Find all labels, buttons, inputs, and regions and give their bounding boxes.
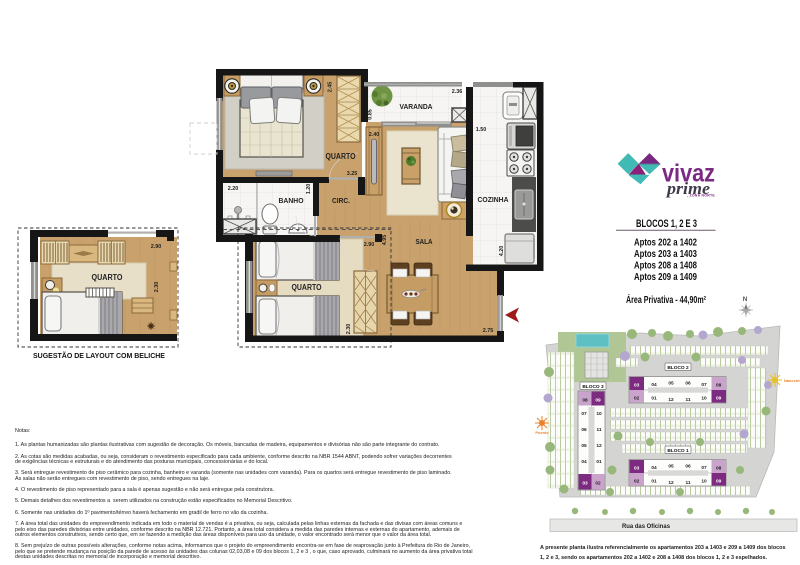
svg-text:10: 10 xyxy=(701,396,707,402)
svg-text:09: 09 xyxy=(716,396,722,402)
svg-text:Aptos 202 a 1402: Aptos 202 a 1402 xyxy=(634,237,697,249)
svg-text:4.20: 4.20 xyxy=(499,246,505,257)
svg-text:07: 07 xyxy=(701,465,707,471)
svg-text:11: 11 xyxy=(685,397,690,403)
svg-text:Área Privativa - 44,90m²: Área Privativa - 44,90m² xyxy=(626,293,706,306)
svg-text:CIRC.: CIRC. xyxy=(332,196,350,205)
svg-text:BLOCO 3: BLOCO 3 xyxy=(582,384,604,390)
svg-text:02: 02 xyxy=(634,479,640,485)
svg-text:11: 11 xyxy=(685,480,690,486)
svg-text:06: 06 xyxy=(685,381,691,387)
svg-text:05: 05 xyxy=(668,381,674,387)
svg-text:Aptos 209 a 1409: Aptos 209 a 1409 xyxy=(634,271,697,283)
svg-text:, ZONA NORTE: , ZONA NORTE xyxy=(687,193,715,197)
svg-text:2.75: 2.75 xyxy=(483,328,494,334)
svg-text:03: 03 xyxy=(634,383,640,389)
svg-text:01: 01 xyxy=(651,479,657,485)
svg-text:06: 06 xyxy=(581,427,587,433)
svg-text:12: 12 xyxy=(596,443,602,449)
svg-text:08: 08 xyxy=(716,466,722,472)
svg-text:11: 11 xyxy=(596,427,601,433)
svg-text:04: 04 xyxy=(581,459,587,465)
svg-text:07: 07 xyxy=(581,411,587,417)
svg-text:09: 09 xyxy=(595,398,601,404)
svg-text:2.45: 2.45 xyxy=(328,82,334,93)
svg-text:VARANDA: VARANDA xyxy=(400,102,433,111)
svg-text:BLOCO 2: BLOCO 2 xyxy=(667,365,689,371)
svg-text:10: 10 xyxy=(701,479,707,485)
svg-text:3.25: 3.25 xyxy=(347,171,358,177)
svg-text:BANHO: BANHO xyxy=(279,196,304,205)
svg-text:Poente: Poente xyxy=(535,430,549,435)
svg-text:N: N xyxy=(743,296,748,303)
svg-text:2.30: 2.30 xyxy=(154,282,160,293)
svg-text:05: 05 xyxy=(668,464,674,470)
svg-text:0.85: 0.85 xyxy=(368,109,374,120)
svg-text:12: 12 xyxy=(668,397,674,403)
svg-text:2.36: 2.36 xyxy=(452,89,463,95)
svg-text:02: 02 xyxy=(634,396,640,402)
svg-text:1.20: 1.20 xyxy=(306,184,312,195)
svg-text:2.20: 2.20 xyxy=(228,186,239,192)
svg-text:05: 05 xyxy=(581,443,587,449)
svg-text:04: 04 xyxy=(651,382,657,388)
svg-text:4.95: 4.95 xyxy=(382,235,388,246)
svg-text:01: 01 xyxy=(651,396,657,402)
svg-text:1.50: 1.50 xyxy=(476,127,487,133)
svg-text:Aptos 208 a 1408: Aptos 208 a 1408 xyxy=(634,260,697,272)
svg-text:COZINHA: COZINHA xyxy=(478,195,509,204)
svg-text:2.90: 2.90 xyxy=(151,244,162,250)
svg-text:03: 03 xyxy=(582,481,588,487)
svg-text:06: 06 xyxy=(685,464,691,470)
svg-text:2.90: 2.90 xyxy=(364,242,375,248)
svg-text:10: 10 xyxy=(596,411,602,417)
svg-text:2.40: 2.40 xyxy=(369,132,380,138)
svg-text:08: 08 xyxy=(716,383,722,389)
svg-text:SALA: SALA xyxy=(416,237,433,246)
svg-text:09: 09 xyxy=(716,479,722,485)
svg-text:08: 08 xyxy=(582,398,588,404)
svg-text:BLOCO 1: BLOCO 1 xyxy=(667,448,689,454)
svg-text:03: 03 xyxy=(634,466,640,472)
svg-text:Aptos 203 a 1403: Aptos 203 a 1403 xyxy=(634,248,697,260)
svg-text:QUARTO: QUARTO xyxy=(326,152,356,161)
svg-text:2.30: 2.30 xyxy=(346,324,352,335)
svg-text:01: 01 xyxy=(596,459,602,465)
svg-text:12: 12 xyxy=(668,480,674,486)
svg-text:QUARTO: QUARTO xyxy=(292,283,322,292)
svg-text:Nascente: Nascente xyxy=(784,378,800,383)
svg-text:02: 02 xyxy=(595,481,601,487)
svg-text:07: 07 xyxy=(701,382,707,388)
svg-text:04: 04 xyxy=(651,465,657,471)
svg-text:BLOCOS 1, 2 E 3: BLOCOS 1, 2 E 3 xyxy=(636,218,697,230)
svg-text:Rua das Oficinas: Rua das Oficinas xyxy=(622,523,670,530)
svg-text:QUARTO: QUARTO xyxy=(92,273,123,282)
